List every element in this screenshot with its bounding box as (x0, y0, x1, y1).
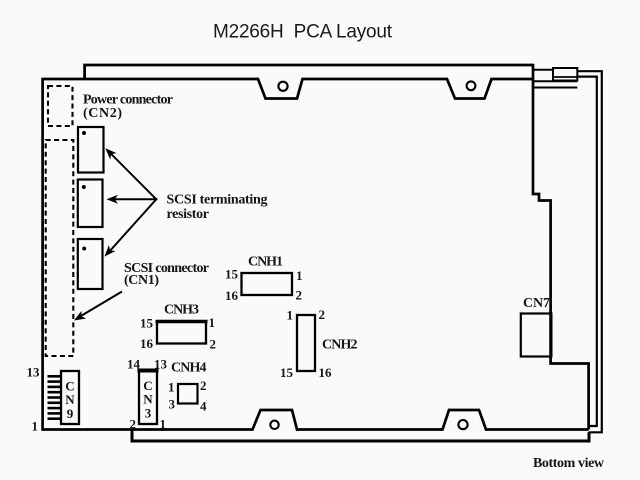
svg-text:2: 2 (200, 378, 207, 393)
svg-text:1: 1 (168, 380, 175, 395)
svg-text:1: 1 (32, 419, 39, 434)
svg-text:1: 1 (160, 417, 167, 432)
svg-text:N: N (65, 392, 75, 407)
svg-text:15: 15 (225, 267, 239, 282)
svg-text:2: 2 (130, 417, 137, 432)
svg-text:1: 1 (287, 308, 294, 323)
svg-text:3: 3 (145, 406, 152, 421)
svg-text:Bottom view: Bottom view (533, 456, 605, 471)
svg-text:SCSI terminating: SCSI terminating (167, 193, 268, 208)
svg-text:4: 4 (200, 399, 207, 414)
svg-text:2: 2 (296, 288, 303, 303)
svg-text:CNH3: CNH3 (164, 303, 199, 318)
svg-text:15: 15 (280, 365, 294, 380)
svg-text:M2266H PCA Layout: M2266H PCA Layout (213, 22, 393, 43)
svg-text:16: 16 (319, 365, 333, 380)
svg-text:2: 2 (210, 337, 217, 352)
svg-text:(CN2): (CN2) (83, 106, 122, 121)
svg-text:CNH1: CNH1 (248, 255, 283, 270)
svg-text:CNH2: CNH2 (322, 338, 358, 353)
svg-text:CNH4: CNH4 (171, 361, 207, 376)
svg-text:1: 1 (209, 315, 216, 330)
svg-text:2: 2 (319, 307, 326, 322)
svg-text:(CN1): (CN1) (124, 273, 159, 288)
svg-text:CN7: CN7 (523, 296, 550, 311)
svg-text:16: 16 (140, 336, 154, 351)
svg-text:15: 15 (140, 316, 154, 331)
svg-text:9: 9 (67, 406, 74, 421)
svg-text:16: 16 (225, 288, 239, 303)
svg-text:3: 3 (169, 397, 176, 412)
svg-text:resistor: resistor (167, 207, 210, 222)
svg-text:13: 13 (27, 365, 41, 380)
svg-text:N: N (143, 392, 153, 407)
svg-text:1: 1 (296, 268, 303, 283)
